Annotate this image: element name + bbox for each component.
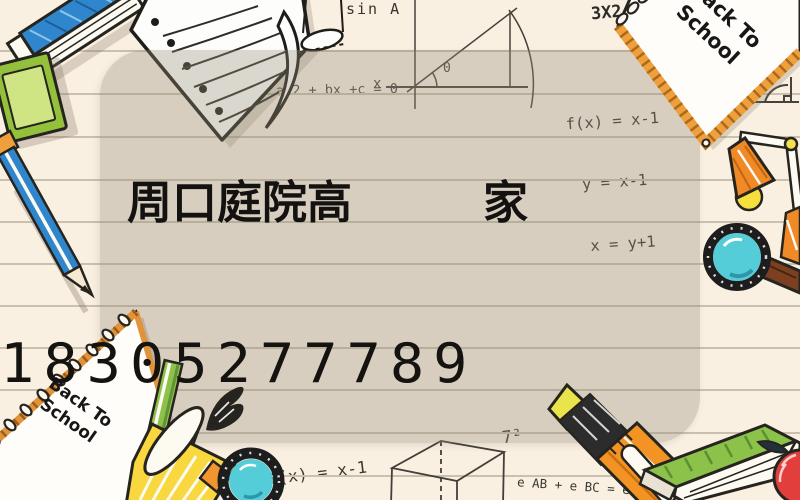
cube-icon	[391, 441, 504, 500]
right-angle-diagram-icon	[752, 77, 799, 102]
magnifier-large-icon	[708, 228, 800, 293]
power-label: 3X2	[590, 2, 622, 25]
title-right: 家	[483, 176, 528, 229]
fx-line: f(x) = x-1	[267, 456, 368, 490]
apple-icon	[758, 441, 800, 500]
page-title: 周口庭院高家	[127, 166, 528, 231]
vector-equation-label: e AB + e BC = e AB	[517, 474, 653, 498]
poster: sin A ax2 + bx +c = 0 3X2 x 0 f(x) = x-1…	[0, 0, 800, 500]
phone-number: 18305277789	[0, 333, 477, 396]
sin-label: sin A	[346, 0, 401, 18]
desk-lamp-icon	[729, 132, 800, 264]
title-left: 周口庭院高	[127, 176, 352, 229]
letter-card-label: C	[0, 68, 61, 125]
ruled-line	[0, 475, 800, 477]
